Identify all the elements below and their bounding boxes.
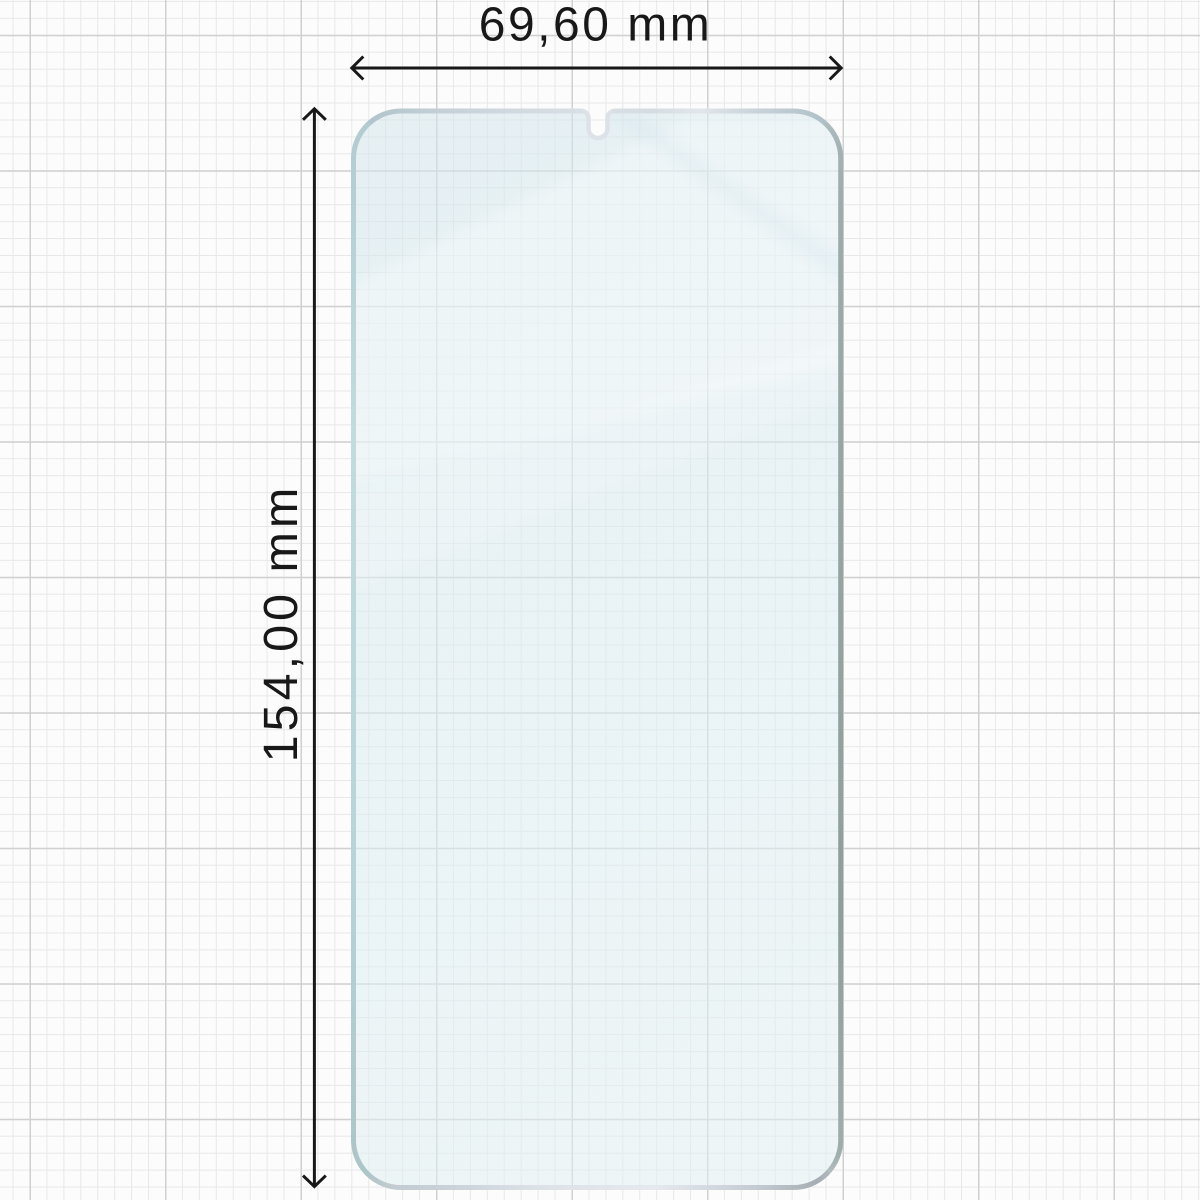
svg-text:69,60 mm: 69,60 mm xyxy=(479,0,712,52)
svg-text:154,00 mm: 154,00 mm xyxy=(254,484,308,763)
